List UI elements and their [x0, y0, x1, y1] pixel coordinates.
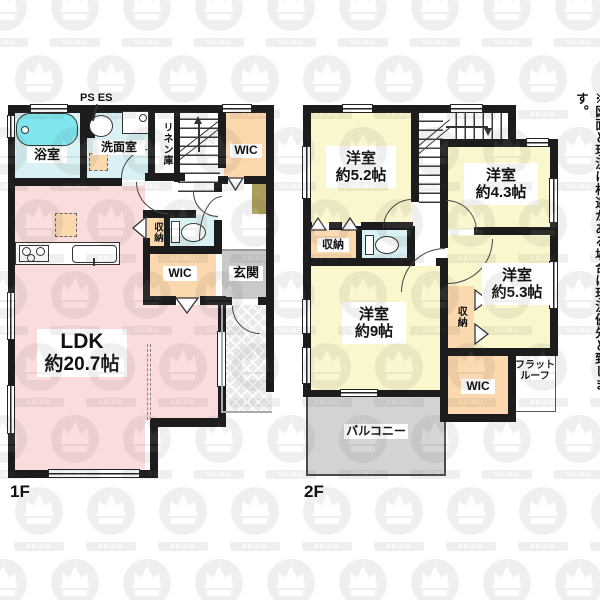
seibu-logo-watermark-icon: SEIBU — [336, 0, 390, 47]
seibu-logo-watermark-icon: SEIBU — [516, 54, 570, 119]
seibu-logo-watermark-icon: SEIBU — [0, 558, 30, 600]
wall — [164, 215, 170, 250]
balcony-label: バルコニー — [344, 424, 408, 439]
wall — [550, 139, 558, 356]
seibu-logo-watermark-icon: SEIBU — [552, 414, 600, 479]
seibu-logo-watermark-icon: SEIBU — [48, 0, 102, 47]
floor2-label: 2F — [304, 482, 324, 502]
seibu-logo-watermark-icon: SEIBU — [84, 486, 138, 551]
wall — [148, 246, 222, 254]
window — [30, 104, 68, 113]
seibu-logo-watermark-icon: SEIBU — [552, 0, 600, 47]
window — [549, 178, 558, 223]
seibu-logo-watermark-icon: SEIBU — [588, 486, 600, 551]
folding-door-icon — [227, 177, 244, 191]
window — [526, 138, 549, 147]
seibu-logo-watermark-icon: SEIBU — [192, 558, 246, 600]
bed52-name: 洋室 — [346, 150, 376, 167]
folding-door-icon — [474, 323, 489, 345]
wic-1f-mid-label: WIC — [163, 266, 197, 281]
stove-burner — [36, 247, 45, 256]
floor1-label: 1F — [10, 482, 30, 502]
room-ldk — [15, 186, 145, 470]
washer-space — [89, 153, 108, 171]
folding-door-icon — [175, 297, 199, 314]
seibu-logo-watermark-icon: SEIBU — [480, 558, 534, 600]
window — [342, 104, 373, 113]
window — [302, 347, 311, 384]
bed43-name: 洋室 — [486, 167, 516, 184]
wall — [303, 258, 415, 266]
bed9-label: 洋室 約9帖 — [342, 302, 406, 344]
wall — [218, 105, 226, 168]
washroom-label: 洗面室 — [93, 140, 145, 155]
disclaimer-note: ※図面と現況に相違がある場合は現況優先と致します。 — [572, 92, 600, 410]
window — [7, 115, 15, 138]
wall — [303, 105, 516, 113]
wall — [474, 227, 558, 235]
wic-1f-top-label: WIC — [230, 144, 262, 158]
stairs-1f-arrow-line — [198, 124, 200, 152]
ldk-label: LDK 約20.7帖 — [37, 329, 127, 377]
seibu-logo-watermark-icon: SEIBU — [480, 0, 534, 47]
window — [7, 385, 15, 434]
window — [48, 469, 140, 478]
seibu-logo-watermark-icon: SEIBU — [408, 0, 462, 47]
seibu-logo-watermark-icon: SEIBU — [336, 558, 390, 600]
wall — [407, 226, 415, 262]
wall — [244, 176, 268, 184]
bed52-label: 洋室 約5.2帖 — [326, 146, 396, 188]
porch-edge — [221, 411, 272, 413]
bath-label: 浴室 — [27, 147, 67, 163]
bathtub-drain — [21, 126, 29, 134]
floorplan-image: PS ES 浴室 洗面室 リネン庫 WIC 収納 WIC 玄関 LDK 約20.… — [0, 0, 600, 600]
window — [302, 299, 311, 334]
folding-door-icon — [341, 217, 359, 231]
ldk-partition-dashed — [147, 344, 151, 420]
bed53-name: 洋室 — [502, 267, 532, 284]
seibu-logo-watermark-icon: SEIBU — [516, 486, 570, 551]
wall — [356, 226, 362, 262]
closet-2f-left-label: 収納 — [317, 238, 349, 252]
porch-edge — [221, 305, 223, 412]
entrance-label: 玄関 — [229, 266, 263, 281]
wall — [8, 178, 122, 186]
window — [222, 104, 252, 113]
wall — [266, 300, 274, 392]
stairs-2f-arrow-line — [446, 126, 488, 128]
seibu-logo-watermark-icon: SEIBU — [120, 558, 174, 600]
seibu-logo-watermark-icon: SEIBU — [156, 486, 210, 551]
seibu-logo-watermark-icon: SEIBU — [48, 558, 102, 600]
flat-roof-line2: ルーフ — [520, 371, 549, 383]
fridge-space — [55, 213, 77, 237]
wall — [258, 297, 274, 305]
folding-door-icon — [132, 216, 147, 240]
toilet-tank-1f — [171, 221, 180, 243]
flat-roof-label: フラット ルーフ — [516, 357, 554, 385]
wall — [266, 105, 274, 307]
ldk-name: LDK — [60, 330, 103, 354]
seibu-logo-watermark-icon: SEIBU — [120, 0, 174, 47]
seibu-logo-watermark-icon: SEIBU — [264, 0, 318, 47]
stairs-1f-arrow-head — [194, 116, 202, 124]
room-ldk-right — [143, 305, 218, 420]
seibu-logo-watermark-icon: SEIBU — [228, 486, 282, 551]
wall — [411, 105, 419, 202]
seibu-logo-watermark-icon: SEIBU — [552, 558, 600, 600]
storage-1f-label: 収納 — [149, 217, 164, 247]
wall — [150, 420, 158, 478]
wall — [378, 390, 448, 397]
flat-roof-line1: フラット — [515, 360, 555, 372]
window — [450, 104, 483, 113]
entrance-step-line — [222, 249, 266, 251]
wall — [80, 110, 87, 182]
ps-label: PS ES — [80, 92, 112, 105]
stairs-2f-arrow-head — [484, 128, 492, 136]
wall — [143, 296, 176, 305]
seibu-logo-watermark-icon: SEIBU — [480, 414, 534, 479]
toilet-bowl-2f — [375, 236, 399, 254]
bed9-area: 約9帖 — [355, 323, 393, 340]
wall — [150, 418, 226, 427]
wall — [440, 235, 448, 248]
seibu-logo-watermark-icon: SEIBU — [0, 0, 30, 47]
linen-label: リネン庫 — [156, 112, 172, 176]
seibu-logo-watermark-icon: SEIBU — [372, 486, 426, 551]
seibu-logo-watermark-icon: SEIBU — [408, 558, 462, 600]
toilet-tank-2f — [365, 235, 374, 255]
bed53-label: 洋室 約5.3帖 — [482, 263, 552, 305]
wall — [440, 348, 558, 356]
sink-tap — [93, 258, 95, 266]
seibu-logo-watermark-icon: SEIBU — [444, 486, 498, 551]
seibu-logo-watermark-icon: SEIBU — [264, 558, 318, 600]
bed43-label: 洋室 約4.3帖 — [464, 163, 538, 205]
wall — [174, 108, 180, 182]
washbasin-faucet — [139, 114, 147, 122]
wall — [214, 183, 222, 192]
window — [340, 389, 378, 397]
wall — [303, 390, 340, 397]
stove-burner — [27, 254, 35, 262]
bed9-name: 洋室 — [359, 306, 389, 323]
wall — [440, 414, 516, 422]
ldk-area: 約20.7帖 — [45, 354, 120, 376]
window — [302, 146, 311, 199]
bed53-area: 約5.3帖 — [492, 284, 543, 301]
closet-2f-right-label: 収納 — [453, 300, 468, 334]
window — [7, 292, 15, 340]
seibu-logo-watermark-icon: SEIBU — [192, 0, 246, 47]
bed43-area: 約4.3帖 — [476, 184, 527, 201]
wic-2f-label: WIC — [461, 379, 495, 394]
folding-door-icon — [309, 217, 327, 231]
bed52-area: 約5.2帖 — [336, 167, 387, 184]
